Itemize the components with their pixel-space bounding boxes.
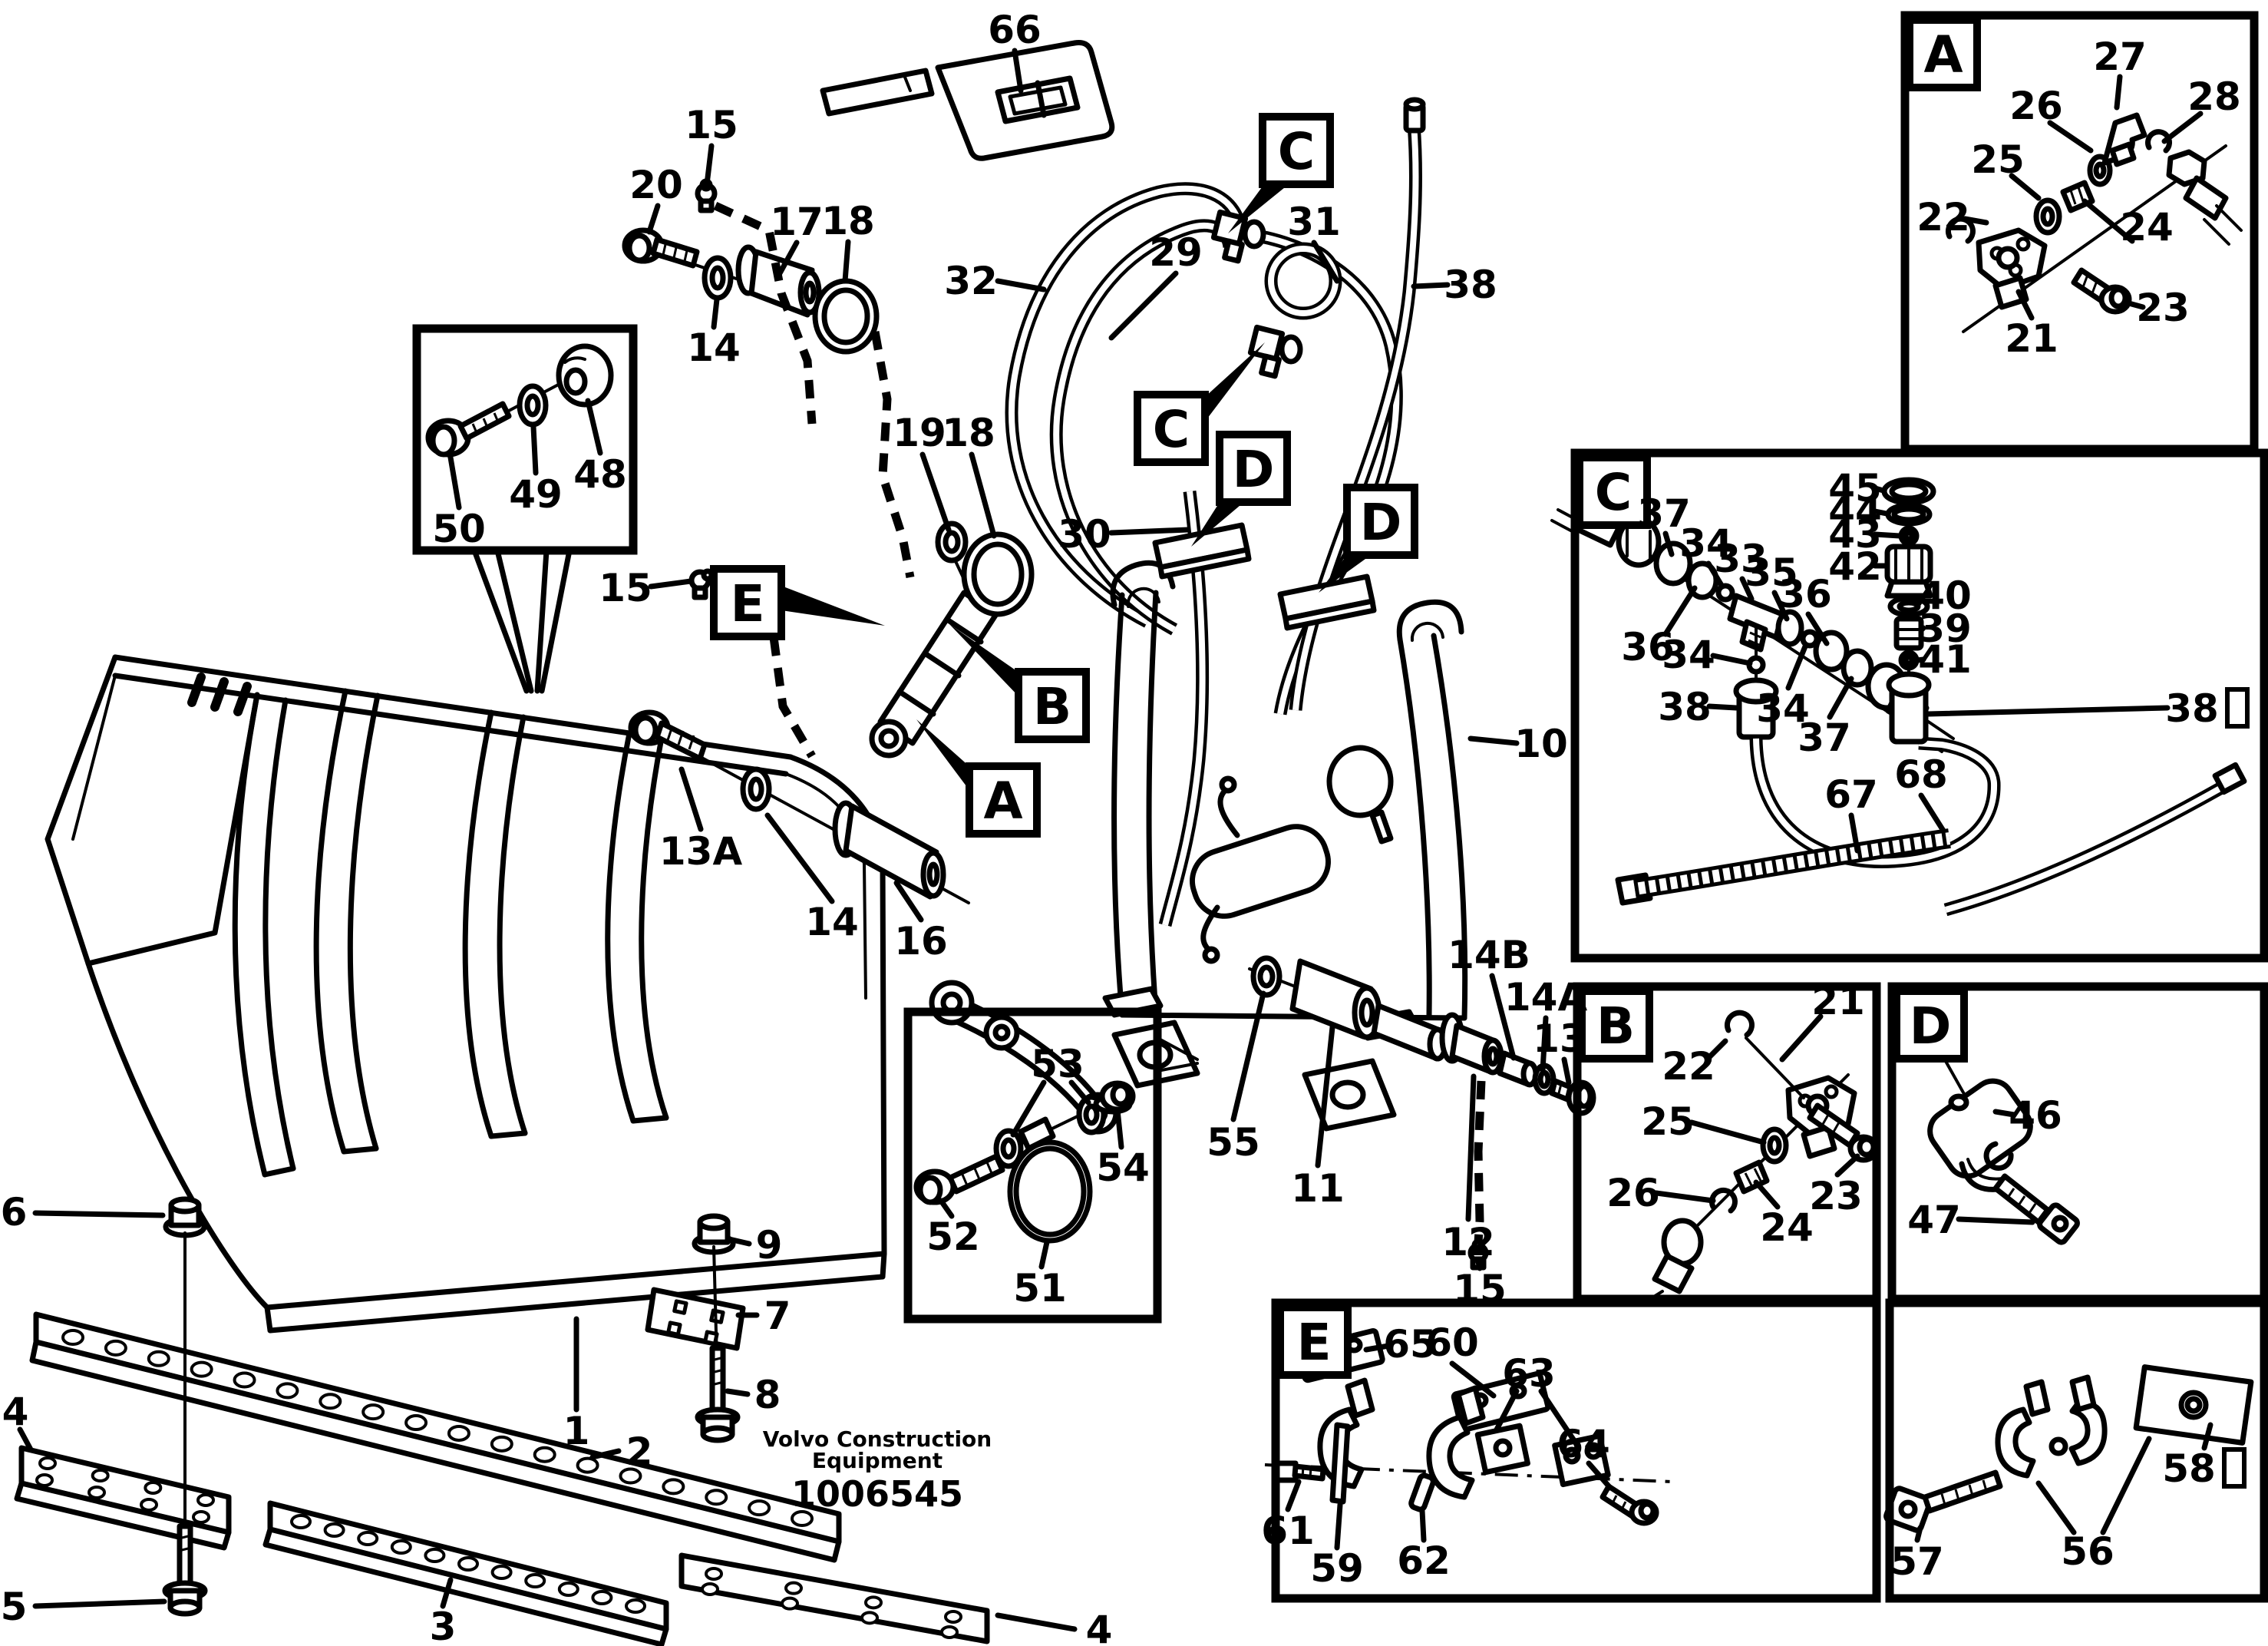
part-label-14: 14 [687,326,741,370]
part-label-24: 24 [2120,205,2174,250]
cutting-edges [17,1199,987,1644]
leader-line-56-82 [2039,1483,2074,1532]
leader-line-6-31 [35,1213,163,1215]
leader-line-47-73 [1959,1219,2032,1222]
leader-line-13A-13 [682,769,701,829]
part-label-15: 15 [599,566,652,610]
part-label-24: 24 [1760,1205,1814,1250]
bolt-hole [37,1475,52,1486]
leader-line-29-7 [1111,273,1176,338]
bolt-hole [106,1341,126,1355]
bolt-hole [392,1541,411,1553]
leader-line-27-38 [2117,77,2120,107]
part-label-47: 47 [1907,1198,1961,1242]
leader-line-8-33 [728,1391,748,1394]
bolt-hole [93,1470,108,1481]
seal-18 [815,281,876,352]
part-label-19: 19 [893,411,946,455]
bolt-hole [946,1611,961,1622]
part-label-3: 3 [430,1605,457,1646]
callout-letter-c-6: C [1153,400,1190,459]
leader-line-52-86 [941,1201,952,1216]
leader-line-55-18 [1233,993,1263,1119]
bolt-hole [192,1363,212,1377]
accumulator [1184,818,1336,924]
brand-line-2: Equipment [812,1448,943,1473]
leader-line-49-36 [533,427,536,473]
part-label-50: 50 [432,507,486,551]
wear-plate-7 [648,1290,743,1348]
part-label-14A: 14A [1504,975,1588,1020]
part-label-36: 36 [1778,572,1832,616]
bolt-hole [560,1583,578,1595]
part-label-60: 60 [1425,1320,1479,1365]
change-bar-marker [2227,689,2247,726]
bolt-hole [626,1600,645,1612]
leader-line-38-63 [1928,708,2167,714]
part-label-15: 15 [1453,1267,1507,1311]
part-label-38: 38 [1444,263,1497,307]
leader-line-26-69 [1656,1193,1713,1201]
part-label-5: 5 [1,1585,28,1629]
callout-letter-b-10: B [1033,677,1071,736]
part-label-21: 21 [2005,316,2058,361]
part-label-67: 67 [1824,772,1878,817]
leader-line-48-37 [588,401,600,453]
washer-19 [938,524,966,560]
bolt-hole [292,1515,310,1528]
part-label-15: 15 [685,103,738,147]
bolt-hole [145,1482,160,1493]
braided-hose-67 [1618,838,1949,903]
part-label-38: 38 [1658,685,1712,729]
washer-14 [705,258,731,298]
hose-fitting-c2 [1250,327,1300,375]
leader-line-15-12 [651,581,691,587]
bolt-hole [358,1532,377,1545]
part-label-20: 20 [629,163,683,207]
edge-plate-4-right [682,1555,987,1641]
leader-line-38-55 [1709,706,1736,708]
parts-diagram: ACBDECCDDEBA 661520171814322931381918151… [0,0,2268,1646]
part-label-21: 21 [1811,979,1865,1023]
bolt-hole [425,1549,444,1562]
callout-letter-c-5: C [1278,122,1315,181]
pin-16 [835,803,943,897]
part-label-26: 26 [1606,1171,1660,1215]
bolt-hole [63,1330,83,1344]
part-label-62: 62 [1397,1539,1451,1583]
bolt-hole [198,1495,213,1506]
bolt-hole [40,1458,55,1469]
part-label-52: 52 [926,1215,980,1259]
callout-letter-e-9: E [730,574,764,633]
part-label-25: 25 [1641,1099,1695,1144]
bolt-hole [749,1501,769,1515]
part-label-9: 9 [756,1223,783,1268]
part-label-32: 32 [944,259,998,303]
leader-line-13-23 [1564,1059,1569,1082]
bolt-hole [363,1405,383,1419]
part-label-4: 4 [1086,1608,1113,1646]
bolt-hole [277,1383,297,1397]
part-label-28: 28 [2187,74,2241,119]
bolt-hole [866,1597,881,1608]
sleeve-17 [738,247,819,315]
part-label-17: 17 [770,200,824,244]
part-label-14B: 14B [1448,933,1530,977]
bolt-hole [862,1612,877,1623]
part-label-57: 57 [1890,1539,1944,1584]
leader-line-18-11 [972,454,994,536]
part-label-54: 54 [1096,1145,1150,1190]
part-label-51: 51 [1013,1266,1067,1311]
footer: Volvo Construction Equipment 1006545 [763,1426,992,1515]
change-bar-marker [2224,1449,2244,1486]
bolt-hole [449,1426,469,1440]
part-label-2: 2 [626,1430,653,1474]
detail-c-contents [1552,480,2244,910]
bolt-20 [625,230,697,266]
leader-line-51-87 [1042,1242,1047,1267]
leader-line-15-1 [707,146,711,184]
bolt-hole [493,1566,511,1578]
bolt-hole [459,1558,477,1570]
leader-line-20-2 [649,206,658,232]
callout-letter-c-1: C [1595,463,1632,522]
bolt-hole [593,1591,611,1604]
nut-6 [166,1199,204,1235]
bolt-hole [526,1575,544,1587]
part-label-10: 10 [1514,722,1568,766]
bolt-hole [193,1512,209,1522]
bolt-hole [706,1568,721,1579]
part-label-14: 14 [805,900,859,944]
part-label-63: 63 [1502,1351,1556,1396]
leader-line-68-65 [1921,795,1943,831]
bolt-hole [706,1490,726,1504]
bolt-hole [141,1499,157,1510]
seal-18b [964,534,1032,614]
part-label-41: 41 [1918,637,1972,682]
part-label-1: 1 [563,1409,590,1453]
part-label-26: 26 [2009,84,2063,128]
part-label-34: 34 [1662,633,1715,677]
bolt-hole [942,1627,957,1638]
part-label-55: 55 [1207,1120,1260,1165]
leader-line-24-70 [1756,1182,1778,1207]
part-label-25: 25 [1971,137,2025,182]
part-label-58: 58 [2162,1446,2216,1491]
leader-line-23-71 [1837,1156,1857,1175]
callout-letter-b-2: B [1596,997,1635,1056]
bolt-hole [782,1598,797,1609]
bolt-hole [235,1373,255,1387]
leader-line-10-17 [1471,739,1517,743]
part-label-16: 16 [894,919,948,963]
part-label-38: 38 [2165,686,2219,731]
bolt-hole [663,1479,683,1493]
part-label-42: 42 [1828,544,1882,589]
bolt-hole [786,1583,801,1594]
hose-38-end-fitting [1406,100,1423,131]
leader-line-14-5 [714,299,717,327]
leader-line-14-14 [768,815,832,901]
part-label-4: 4 [2,1390,29,1434]
part-label-53: 53 [1031,1042,1084,1086]
washer-14b [743,769,769,809]
part-label-23: 23 [1809,1174,1863,1218]
leader-line-32-6 [998,281,1044,289]
part-label-59: 59 [1310,1546,1364,1591]
leader-line-4-29 [998,1615,1075,1629]
callout-letter-e-4: E [1296,1313,1331,1372]
leader-line-12-20 [1468,1076,1474,1219]
part-label-64: 64 [1557,1422,1610,1466]
part-label-27: 27 [2093,35,2147,79]
leader-line-5-30 [35,1601,164,1606]
part-label-46: 46 [2009,1093,2062,1138]
part-label-37: 37 [1798,716,1851,760]
part-label-68: 68 [1894,752,1948,797]
bolt-hole [702,1584,718,1595]
part-label-31: 31 [1287,200,1341,244]
part-label-18: 18 [942,411,995,455]
bolt-hole [578,1459,598,1472]
bolt-hole [89,1487,104,1498]
callout-letter-a-0: A [1923,25,1963,84]
leader-line-57-81 [1917,1528,1920,1540]
damper-cylinder [872,524,1032,755]
part-label-23: 23 [2136,286,2190,330]
part-label-18: 18 [821,199,875,243]
part-label-8: 8 [754,1373,781,1417]
leader-line-61-78 [1288,1482,1299,1509]
part-label-6: 6 [1,1190,28,1234]
leader-line-34-52 [1713,656,1750,663]
callout-letter-a-11: A [983,772,1022,831]
part-label-22: 22 [1662,1044,1715,1089]
callout-letter-d-3: D [1910,997,1952,1056]
grease-fitting-15-mid [692,571,711,597]
doc-number: 1006545 [791,1473,963,1515]
leader-line-30-16 [1111,530,1188,533]
part-label-30: 30 [1058,512,1111,557]
leader-line-56-82 [2103,1439,2149,1532]
bolt-hole [325,1524,344,1536]
bolt-hole [492,1437,512,1451]
leader-line-50-35 [450,453,459,507]
part-label-13A: 13A [659,829,743,874]
part-label-22: 22 [1916,195,1970,240]
part-label-13: 13 [1533,1016,1586,1061]
callout-letter-d-8: D [1360,493,1402,552]
part-label-49: 49 [509,472,563,517]
part-label-29: 29 [1149,230,1203,275]
part-label-56: 56 [2061,1529,2114,1574]
leader-line-19-10 [923,454,949,530]
part-label-11: 11 [1291,1166,1345,1211]
bolt-hole [149,1352,169,1366]
part-label-12: 12 [1441,1220,1495,1264]
bolt-hole [535,1448,555,1462]
strap-66 [823,43,1112,159]
leader-line-62-80 [1422,1511,1424,1540]
leader-line-18-4 [845,242,848,281]
bolt-hole [320,1394,340,1408]
callout-letter-d-7: D [1233,440,1275,499]
leader-line-54-85 [1117,1110,1121,1147]
part-label-61: 61 [1261,1509,1315,1553]
leader-line-59-79 [1337,1505,1340,1548]
part-label-48: 48 [573,452,627,497]
leader-line-38-9 [1414,285,1448,286]
part-label-7: 7 [764,1294,791,1338]
bolt-hole [406,1416,426,1430]
part-label-66: 66 [988,8,1042,52]
leader-line-25-68 [1692,1122,1764,1142]
leader-line-37-54 [1830,679,1851,717]
